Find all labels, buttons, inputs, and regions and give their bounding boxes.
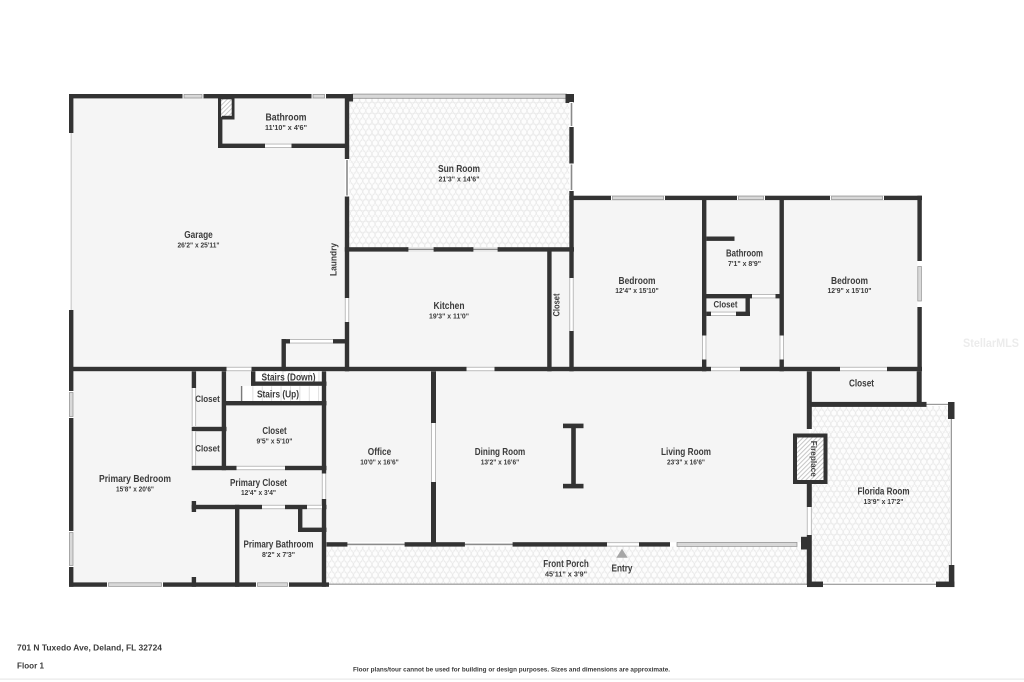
- svg-text:26'2" x 25'11": 26'2" x 25'11": [178, 240, 220, 249]
- svg-text:Living Room: Living Room: [661, 447, 711, 458]
- svg-text:12'9" x 15'10": 12'9" x 15'10": [828, 286, 872, 295]
- svg-text:Closet: Closet: [195, 444, 220, 454]
- svg-text:Closet: Closet: [195, 394, 220, 404]
- svg-text:9'5" x 5'10": 9'5" x 5'10": [257, 437, 293, 446]
- svg-text:Front Porch: Front Porch: [543, 559, 589, 570]
- svg-text:Closet: Closet: [262, 426, 287, 437]
- svg-text:Dining Room: Dining Room: [475, 447, 526, 458]
- svg-text:Florida Room: Florida Room: [858, 487, 910, 498]
- svg-text:Office: Office: [368, 447, 392, 458]
- svg-text:Closet: Closet: [849, 379, 875, 390]
- svg-text:11'10" x 4'6": 11'10" x 4'6": [265, 123, 307, 132]
- svg-text:Fireplace: Fireplace: [809, 441, 818, 478]
- svg-text:15'8" x 20'6": 15'8" x 20'6": [116, 484, 154, 493]
- svg-text:Primary Bathroom: Primary Bathroom: [244, 540, 314, 551]
- svg-text:StellarMLS: StellarMLS: [963, 338, 1019, 350]
- svg-text:45'11" x 3'9": 45'11" x 3'9": [545, 569, 587, 578]
- svg-text:10'0" x 16'6": 10'0" x 16'6": [360, 457, 399, 466]
- svg-text:8'2" x 7'3": 8'2" x 7'3": [262, 550, 295, 559]
- svg-text:19'3" x 11'0": 19'3" x 11'0": [429, 311, 469, 320]
- svg-text:Closet: Closet: [552, 293, 563, 317]
- svg-text:Bedroom: Bedroom: [831, 276, 868, 287]
- svg-text:Sun Room: Sun Room: [438, 164, 480, 175]
- svg-text:Floor 1: Floor 1: [17, 661, 44, 671]
- svg-text:Kitchen: Kitchen: [434, 301, 465, 312]
- svg-text:12'4" x 15'10": 12'4" x 15'10": [615, 286, 659, 295]
- svg-text:Closet: Closet: [714, 300, 739, 311]
- svg-text:Garage: Garage: [184, 230, 213, 241]
- svg-text:Stairs (Down): Stairs (Down): [262, 372, 316, 383]
- svg-text:Bedroom: Bedroom: [619, 276, 656, 287]
- svg-text:Entry: Entry: [612, 564, 633, 575]
- svg-text:21'3" x 14'6": 21'3" x 14'6": [439, 174, 480, 183]
- svg-text:13'2" x 16'6": 13'2" x 16'6": [481, 457, 520, 466]
- svg-text:23'3" x 16'6": 23'3" x 16'6": [667, 457, 705, 466]
- svg-text:Bathroom: Bathroom: [726, 249, 763, 260]
- svg-text:Primary Bedroom: Primary Bedroom: [99, 474, 171, 485]
- svg-text:Floor plans/tour cannot be use: Floor plans/tour cannot be used for buil…: [353, 667, 670, 674]
- svg-text:12'4" x 3'4": 12'4" x 3'4": [241, 488, 276, 497]
- svg-text:701 N Tuxedo Ave, Deland, FL 3: 701 N Tuxedo Ave, Deland, FL 32724: [17, 643, 162, 653]
- svg-text:Laundry: Laundry: [329, 242, 340, 276]
- svg-text:13'9" x 17'2": 13'9" x 17'2": [864, 497, 904, 506]
- svg-text:Primary Closet: Primary Closet: [230, 478, 288, 489]
- svg-text:7'1" x 8'9": 7'1" x 8'9": [728, 259, 761, 268]
- svg-text:Bathroom: Bathroom: [266, 113, 307, 124]
- svg-text:Stairs (Up): Stairs (Up): [257, 389, 299, 400]
